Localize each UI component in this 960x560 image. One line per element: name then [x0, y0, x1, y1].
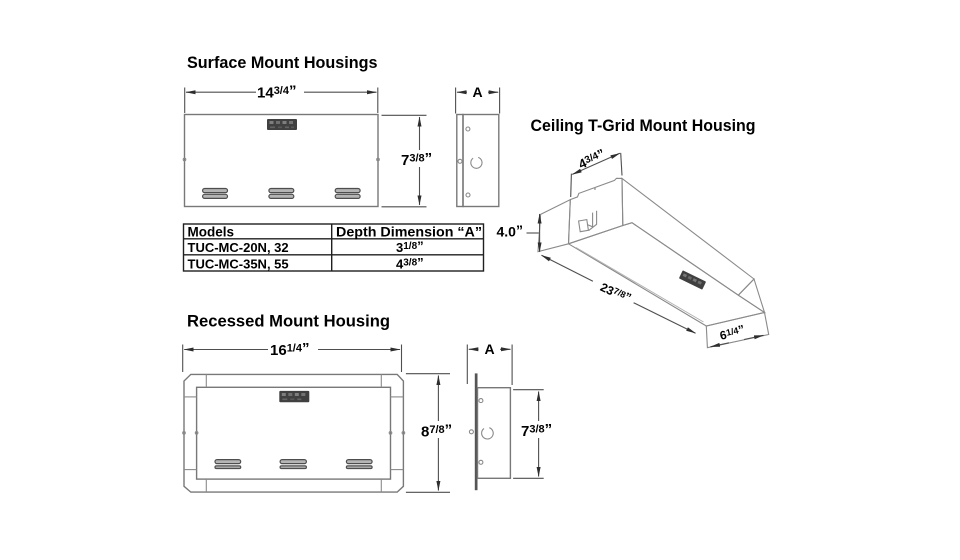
svg-text:161/4”: 161/4” [270, 340, 309, 359]
svg-text:Recessed Mount Housing: Recessed Mount Housing [187, 313, 390, 331]
svg-text:237/8”: 237/8” [598, 279, 633, 307]
svg-text:31/8”: 31/8” [396, 239, 424, 256]
svg-text:Ceiling T-Grid Mount Housing: Ceiling T-Grid Mount Housing [531, 117, 756, 135]
svg-text:43/4”: 43/4” [576, 146, 608, 172]
svg-text:61/4”: 61/4” [718, 322, 746, 343]
svg-text:43/8”: 43/8” [396, 255, 424, 272]
svg-text:A: A [473, 84, 483, 100]
svg-text:Surface Mount Housings: Surface Mount Housings [187, 54, 378, 72]
svg-text:Models: Models [188, 224, 235, 239]
svg-text:TUC-MC-20N, 32: TUC-MC-20N, 32 [188, 240, 289, 255]
svg-text:A: A [485, 341, 495, 357]
svg-text:Depth Dimension “A”: Depth Dimension “A” [336, 224, 482, 239]
svg-text:4.0”: 4.0” [497, 222, 523, 240]
svg-text:143/4”: 143/4” [257, 83, 296, 102]
svg-text:TUC-MC-35N, 55: TUC-MC-35N, 55 [188, 256, 289, 271]
